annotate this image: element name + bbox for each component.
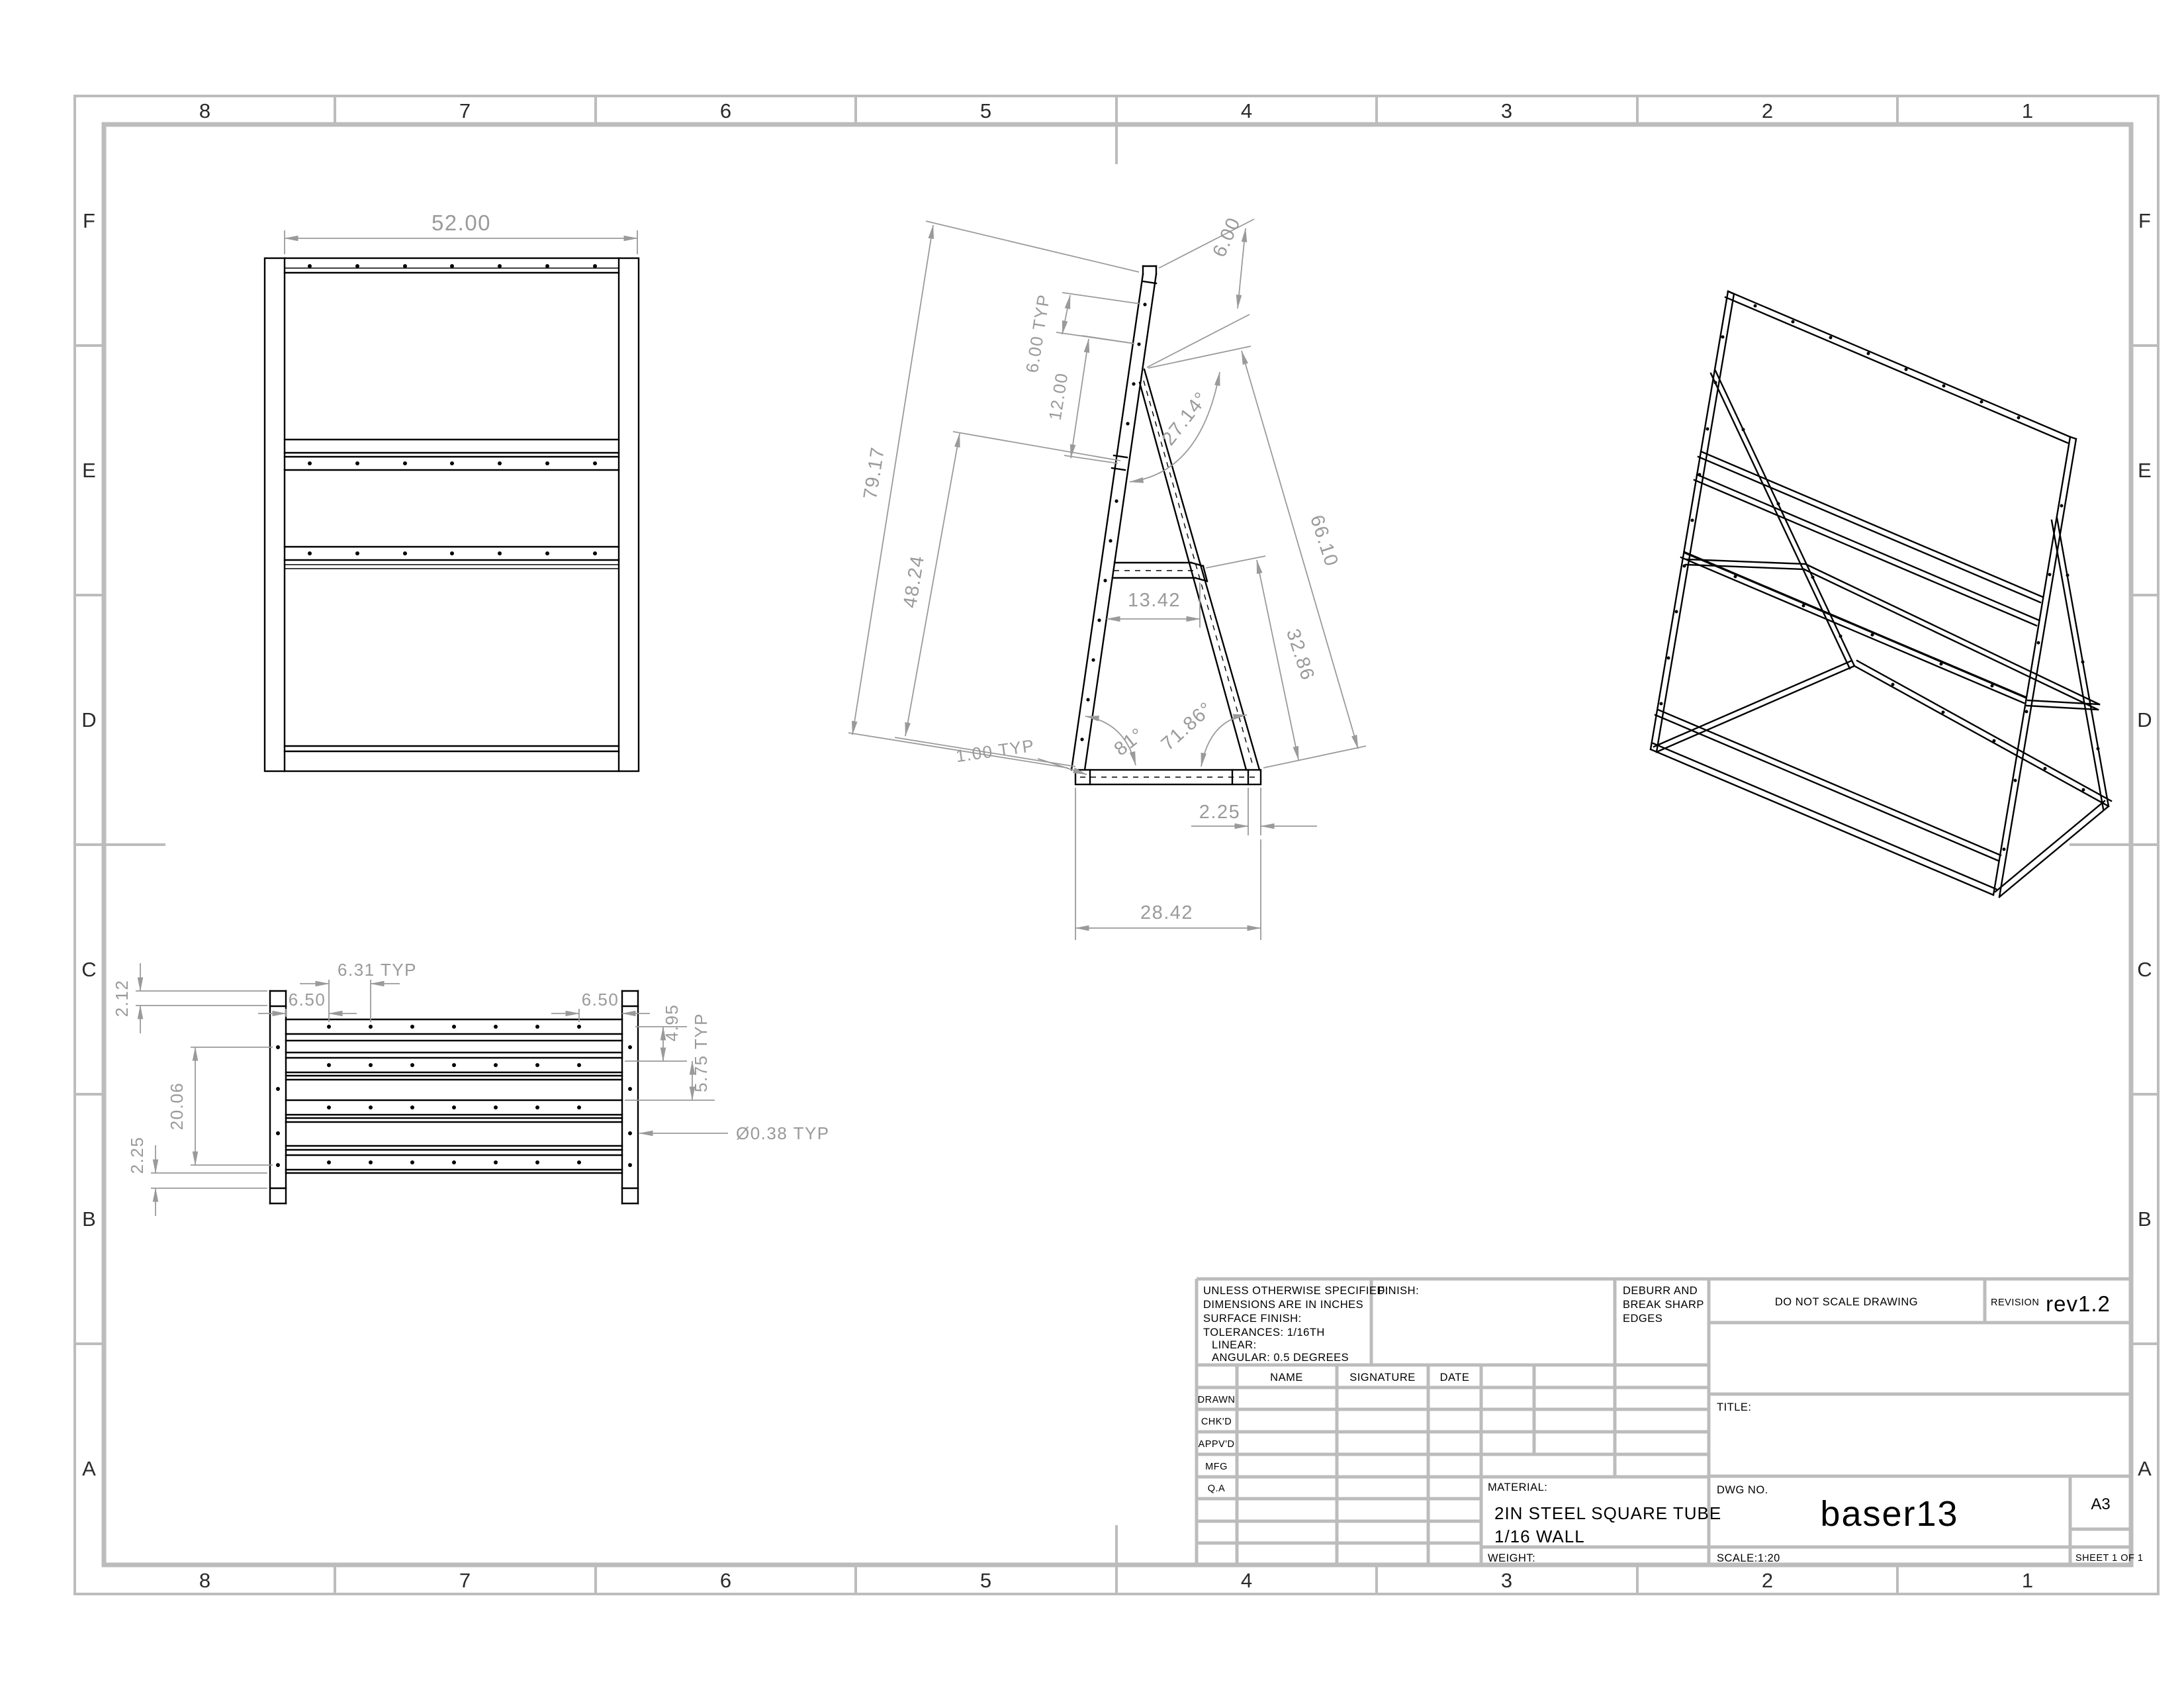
signature-header: SIGNATURE: [1349, 1372, 1416, 1383]
isometric-view: [1651, 291, 2111, 897]
plan-view: 6.31 TYP 6.50 6.50 2.12 20.06 2.25 4.95: [112, 960, 830, 1216]
grid-col-label: 4: [1241, 1569, 1253, 1592]
grid-col-label: 1: [2022, 99, 2034, 122]
grid-row-label: D: [81, 708, 97, 731]
grid-row-label: F: [83, 209, 96, 232]
revision-value: rev1.2: [2046, 1291, 2111, 1316]
grid-col-label: 2: [1762, 99, 1774, 122]
grid-row-label: D: [2137, 708, 2152, 731]
grid-row-label: A: [2138, 1457, 2152, 1480]
row-label-chkd: CHK'D: [1201, 1417, 1232, 1427]
sheet-border: 8 7 6 5 4 3 2 1 8 7 6 5 4 3 2 1 F E D C …: [75, 96, 2158, 1594]
dim-edge-offset-left: 6.50: [289, 990, 326, 1009]
grid-col-label: 3: [1501, 1569, 1513, 1592]
dim-front-angle: 81°: [1111, 724, 1149, 760]
grid-row-label: C: [81, 958, 97, 981]
grid-col-label: 8: [199, 99, 211, 122]
material-value-2: 1/16 WALL: [1494, 1526, 1585, 1546]
dwg-no-label: DWG NO.: [1717, 1484, 1768, 1496]
material-label: MATERIAL:: [1488, 1481, 1547, 1493]
grid-row-label: F: [2138, 209, 2152, 232]
material-value-1: 2IN STEEL SQUARE TUBE: [1494, 1503, 1721, 1523]
grid-col-label: 7: [459, 99, 471, 122]
grid-row-label: C: [2137, 958, 2152, 981]
grid-col-label: 1: [2022, 1569, 2034, 1592]
dim-foot-width: 2.25: [1199, 802, 1240, 823]
spec-note-line: SURFACE FINISH:: [1203, 1313, 1302, 1325]
dim-rail-span: 20.06: [167, 1082, 187, 1131]
dim-row-gap-2: 5.75 TYP: [691, 1013, 711, 1092]
grid-col-label: 2: [1762, 1569, 1774, 1592]
grid-row-label: E: [2138, 459, 2152, 482]
grid-col-label: 7: [459, 1569, 471, 1592]
grid-col-label: 6: [720, 1569, 732, 1592]
spec-note-line: LINEAR:: [1212, 1339, 1257, 1351]
do-not-scale-note: DO NOT SCALE DRAWING: [1775, 1296, 1918, 1308]
grid-row-label: A: [82, 1457, 97, 1480]
row-label-drawn: DRAWN: [1198, 1395, 1236, 1405]
drawing-canvas: 8 7 6 5 4 3 2 1 8 7 6 5 4 3 2 1 F E D C …: [0, 0, 2184, 1688]
title-block: UNLESS OTHERWISE SPECIFIED: DIMENSIONS A…: [1197, 1279, 2143, 1565]
dim-overall-length: 79.17: [860, 445, 889, 501]
dim-edge-offset-right: 6.50: [582, 990, 619, 1009]
dim-lower-length: 48.24: [899, 554, 929, 610]
dim-end-tab: 2.12: [112, 980, 132, 1017]
spec-note-line: TOLERANCES: 1/16TH: [1203, 1327, 1325, 1338]
grid-col-label: 3: [1501, 99, 1513, 122]
dim-front-width: 52.00: [432, 211, 491, 235]
grid-row-label: B: [82, 1207, 97, 1231]
dwg-no-value: baser13: [1820, 1494, 1958, 1534]
dim-base-depth: 28.42: [1140, 902, 1193, 923]
grid-col-label: 6: [720, 99, 732, 122]
side-view: 79.17 48.24 6.00 6.00 TYP 12.00 27.14° 6…: [848, 214, 1366, 940]
weight-label: WEIGHT:: [1488, 1552, 1535, 1564]
finish-label: FINISH:: [1378, 1285, 1419, 1297]
name-header: NAME: [1270, 1372, 1303, 1383]
drawing-sheet: 8 7 6 5 4 3 2 1 8 7 6 5 4 3 2 1 F E D C …: [0, 0, 2184, 1688]
sheet-size: A3: [2091, 1495, 2110, 1513]
dim-brace-length: 66.10: [1306, 512, 1342, 569]
dim-rung-pitch: 6.00 TYP: [1022, 293, 1054, 374]
dim-rung-pitch-2: 12.00: [1045, 371, 1072, 421]
row-label-qa: Q.A: [1208, 1483, 1225, 1494]
dim-foot-depth: 2.25: [127, 1137, 147, 1174]
dim-hole-pitch: 6.31 TYP: [338, 960, 417, 980]
scale-value: SCALE:1:20: [1717, 1552, 1780, 1564]
grid-row-label: E: [82, 459, 97, 482]
grid-col-label: 4: [1241, 99, 1253, 122]
dim-apex-angle: 27.14°: [1158, 388, 1213, 449]
dim-brace-angle: 71.86°: [1158, 698, 1218, 755]
deburr-note-line: DEBURR AND: [1623, 1285, 1698, 1297]
deburr-note-line: EDGES: [1623, 1313, 1662, 1325]
grid-col-label: 5: [980, 1569, 992, 1592]
spec-note-line: DIMENSIONS ARE IN INCHES: [1203, 1299, 1363, 1311]
row-label-mfg: MFG: [1205, 1462, 1228, 1472]
grid-col-label: 5: [980, 99, 992, 122]
spec-note-line: ANGULAR: 0.5 DEGREES: [1212, 1352, 1349, 1364]
dim-shelf-depth: 13.42: [1128, 590, 1181, 611]
row-label-appvd: APPV'D: [1199, 1439, 1235, 1450]
deburr-note-line: BREAK SHARP: [1623, 1299, 1704, 1311]
grid-col-label: 8: [199, 1569, 211, 1592]
front-view: 52.00: [265, 211, 639, 771]
dim-tube-note: 1.00 TYP: [954, 735, 1036, 766]
dim-top-overhang: 6.00: [1208, 214, 1245, 260]
revision-label: REVISION: [1991, 1297, 2039, 1308]
sheet-value: SHEET 1 OF 1: [2075, 1553, 2143, 1564]
date-header: DATE: [1440, 1372, 1470, 1383]
grid-row-label: B: [2138, 1207, 2152, 1231]
spec-note-line: UNLESS OTHERWISE SPECIFIED:: [1203, 1285, 1388, 1297]
dim-row-gap-1: 4.95: [662, 1004, 682, 1042]
title-label: TITLE:: [1717, 1401, 1752, 1413]
dim-brace-lower: 32.86: [1282, 626, 1318, 683]
dim-hole-dia: Ø0.38 TYP: [736, 1123, 830, 1143]
